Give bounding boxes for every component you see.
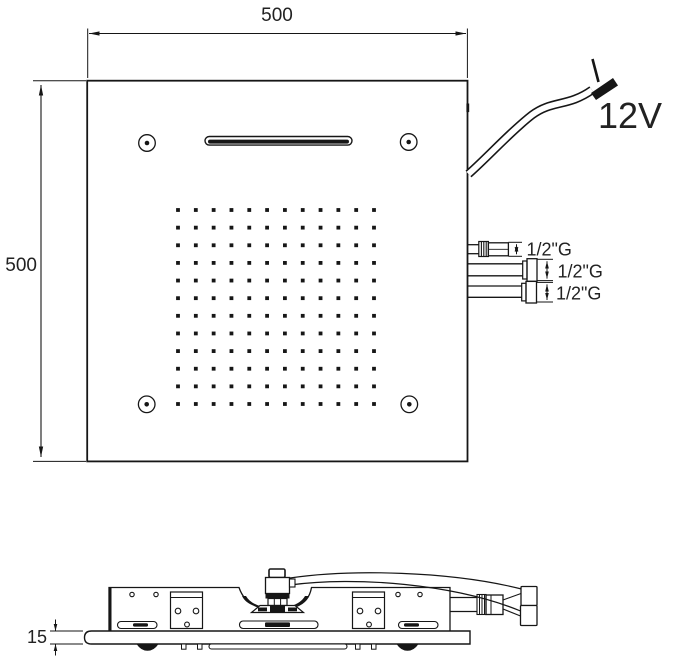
nozzle — [176, 243, 180, 247]
nozzle — [336, 226, 340, 230]
nozzle — [230, 349, 234, 353]
nozzle — [283, 332, 287, 336]
nozzle — [319, 367, 323, 371]
mounting-bracket-left — [171, 592, 203, 629]
nozzle — [372, 261, 376, 265]
nozzle — [194, 314, 198, 318]
flange-mark — [258, 608, 267, 612]
nozzle — [301, 261, 305, 265]
foot-tab — [372, 644, 377, 649]
nozzle — [176, 349, 180, 353]
width-dimension: 500 — [88, 5, 468, 78]
nozzle — [230, 384, 234, 388]
screw — [418, 592, 422, 596]
inlet-3-label: 1/2"G — [556, 284, 601, 304]
nozzle — [230, 402, 234, 406]
nozzle — [194, 208, 198, 212]
nozzle — [230, 332, 234, 336]
nozzle — [247, 279, 251, 283]
nozzle — [212, 349, 216, 353]
nozzle — [283, 279, 287, 283]
nozzle — [301, 296, 305, 300]
nozzle — [301, 332, 305, 336]
underplate-details — [137, 644, 419, 651]
nozzle — [319, 296, 323, 300]
nozzle — [283, 243, 287, 247]
fitting-body — [527, 259, 537, 282]
side-view: 15 — [27, 569, 537, 656]
nozzle — [319, 279, 323, 283]
valve-band — [266, 594, 290, 599]
nozzle — [354, 314, 358, 318]
nozzle — [336, 367, 340, 371]
inlet-2-label: 1/2"G — [558, 262, 603, 282]
nozzle — [354, 208, 358, 212]
nozzle — [336, 279, 340, 283]
nozzle — [372, 332, 376, 336]
nozzle — [319, 402, 323, 406]
valve-tab — [290, 579, 296, 587]
connector-blocks — [521, 587, 538, 626]
nozzle — [230, 367, 234, 371]
nozzle — [247, 208, 251, 212]
nozzle — [372, 226, 376, 230]
nozzle — [230, 243, 234, 247]
nozzle — [212, 296, 216, 300]
nozzle — [247, 384, 251, 388]
nozzle — [212, 279, 216, 283]
nozzle — [247, 226, 251, 230]
nozzle — [319, 226, 323, 230]
nozzle — [319, 349, 323, 353]
nozzle — [336, 243, 340, 247]
valve-assembly — [252, 569, 304, 613]
nozzle — [372, 279, 376, 283]
nozzle — [265, 384, 269, 388]
nozzle — [319, 208, 323, 212]
nozzle — [319, 332, 323, 336]
nozzle — [176, 208, 180, 212]
nozzle — [372, 243, 376, 247]
waterfall-strip — [209, 644, 347, 649]
nozzle — [283, 226, 287, 230]
top-view: 500 500 — [5, 5, 662, 461]
height-dimension-label: 500 — [5, 255, 37, 276]
flange-center — [270, 606, 285, 612]
width-dimension-label: 500 — [261, 5, 293, 26]
nozzle — [230, 261, 234, 265]
nozzle — [354, 261, 358, 265]
nozzle — [336, 208, 340, 212]
nozzle — [265, 367, 269, 371]
nozzle — [212, 332, 216, 336]
center-slot-mark — [265, 622, 290, 627]
nozzle — [354, 384, 358, 388]
water-inlet-2: 1/2"G — [468, 259, 603, 282]
power-cable — [469, 59, 619, 174]
nozzle — [194, 402, 198, 406]
fitting-body — [526, 281, 537, 303]
nozzle — [319, 243, 323, 247]
nozzle — [230, 296, 234, 300]
nozzle — [265, 349, 269, 353]
nozzle — [247, 243, 251, 247]
nozzle — [212, 384, 216, 388]
screw — [154, 592, 158, 596]
nozzle — [336, 332, 340, 336]
nozzle — [301, 314, 305, 318]
water-inlet-1: 1/2"G — [468, 240, 572, 260]
waterfall-slot — [205, 137, 352, 146]
nozzle — [265, 402, 269, 406]
nozzle — [283, 402, 287, 406]
nozzle — [336, 402, 340, 406]
nozzle — [354, 226, 358, 230]
nozzle — [354, 296, 358, 300]
fitting-body — [486, 595, 503, 615]
nozzle — [176, 314, 180, 318]
nozzle — [265, 314, 269, 318]
nozzle — [301, 243, 305, 247]
foot-tab — [356, 644, 361, 649]
power-label: 12V — [598, 95, 662, 136]
foot-tab — [182, 644, 187, 649]
nozzle — [354, 367, 358, 371]
nozzle — [265, 226, 269, 230]
nozzle — [247, 296, 251, 300]
nozzle — [354, 243, 358, 247]
nozzle — [372, 402, 376, 406]
thickness-label: 15 — [27, 627, 47, 647]
nozzle — [301, 384, 305, 388]
nozzle — [372, 296, 376, 300]
nozzle — [194, 384, 198, 388]
flange-mark — [288, 608, 297, 612]
nozzle — [336, 261, 340, 265]
supply-pipe — [450, 594, 521, 617]
nozzle — [354, 332, 358, 336]
nozzle — [176, 226, 180, 230]
nozzle — [194, 243, 198, 247]
nozzle — [176, 402, 180, 406]
nozzle — [319, 314, 323, 318]
nozzle — [194, 279, 198, 283]
nozzle — [301, 402, 305, 406]
nozzle — [301, 279, 305, 283]
nozzle — [283, 261, 287, 265]
nozzle — [283, 296, 287, 300]
slot-mark — [133, 623, 148, 626]
mounting-bracket-right — [353, 592, 385, 629]
nozzle — [283, 208, 287, 212]
nozzle — [319, 261, 323, 265]
valve-body — [266, 578, 290, 594]
nozzle — [265, 279, 269, 283]
nozzle — [301, 367, 305, 371]
nozzle — [230, 314, 234, 318]
nozzle — [194, 332, 198, 336]
screw-boss — [397, 644, 419, 651]
nozzle — [176, 261, 180, 265]
technical-drawing: 500 500 — [0, 0, 675, 657]
cable-wire-end — [593, 59, 599, 82]
nozzle — [212, 367, 216, 371]
nozzle — [176, 279, 180, 283]
nozzle — [212, 402, 216, 406]
nozzle — [247, 367, 251, 371]
nozzle — [194, 261, 198, 265]
nozzle — [212, 226, 216, 230]
screw — [396, 592, 400, 596]
valve-nut — [268, 599, 287, 606]
edge-mark — [466, 104, 469, 113]
nozzle — [194, 349, 198, 353]
nozzle — [301, 349, 305, 353]
nozzle — [283, 384, 287, 388]
nozzle — [212, 261, 216, 265]
nozzle — [336, 349, 340, 353]
nozzle — [194, 226, 198, 230]
nozzle — [283, 314, 287, 318]
nozzle — [372, 367, 376, 371]
valve-cap — [269, 569, 285, 578]
screw — [130, 592, 134, 596]
nozzle — [283, 367, 287, 371]
nozzle — [247, 402, 251, 406]
nozzle — [265, 208, 269, 212]
recess-shading — [242, 596, 260, 606]
nozzle — [354, 402, 358, 406]
nozzle — [336, 296, 340, 300]
nozzle — [247, 261, 251, 265]
nozzle — [176, 332, 180, 336]
nozzle — [247, 349, 251, 353]
nozzle — [212, 314, 216, 318]
connector-block-upper — [521, 587, 537, 606]
nozzle — [265, 332, 269, 336]
nozzle — [319, 384, 323, 388]
nozzle — [230, 226, 234, 230]
height-dimension: 500 — [5, 81, 86, 462]
nozzle — [301, 226, 305, 230]
nozzle — [372, 349, 376, 353]
nozzle — [247, 332, 251, 336]
nozzle — [336, 384, 340, 388]
nozzle — [212, 243, 216, 247]
thickness-dimension: 15 — [27, 620, 83, 656]
nozzle — [372, 314, 376, 318]
nozzle — [301, 208, 305, 212]
water-inlet-3: 1/2"G — [468, 281, 602, 303]
nozzle — [354, 279, 358, 283]
nozzle — [176, 367, 180, 371]
nozzle — [354, 349, 358, 353]
nozzle — [372, 384, 376, 388]
nozzle — [194, 296, 198, 300]
inlet-1-label: 1/2"G — [527, 240, 572, 260]
nozzle — [212, 208, 216, 212]
nozzle — [265, 243, 269, 247]
foot-tab — [198, 644, 203, 649]
nozzle — [176, 384, 180, 388]
nozzle — [230, 208, 234, 212]
base-plate — [85, 631, 471, 644]
nozzle — [372, 208, 376, 212]
nozzle — [336, 314, 340, 318]
connector-block-lower — [521, 606, 538, 626]
slot-mark — [404, 623, 419, 626]
nozzle — [230, 279, 234, 283]
cable-run — [290, 573, 522, 611]
screw-boss — [137, 644, 159, 651]
nozzle — [176, 296, 180, 300]
nozzle — [283, 349, 287, 353]
drawing-canvas: 500 500 — [0, 0, 675, 657]
nozzle — [194, 367, 198, 371]
nozzle — [265, 296, 269, 300]
nozzle — [265, 261, 269, 265]
nozzle — [247, 314, 251, 318]
